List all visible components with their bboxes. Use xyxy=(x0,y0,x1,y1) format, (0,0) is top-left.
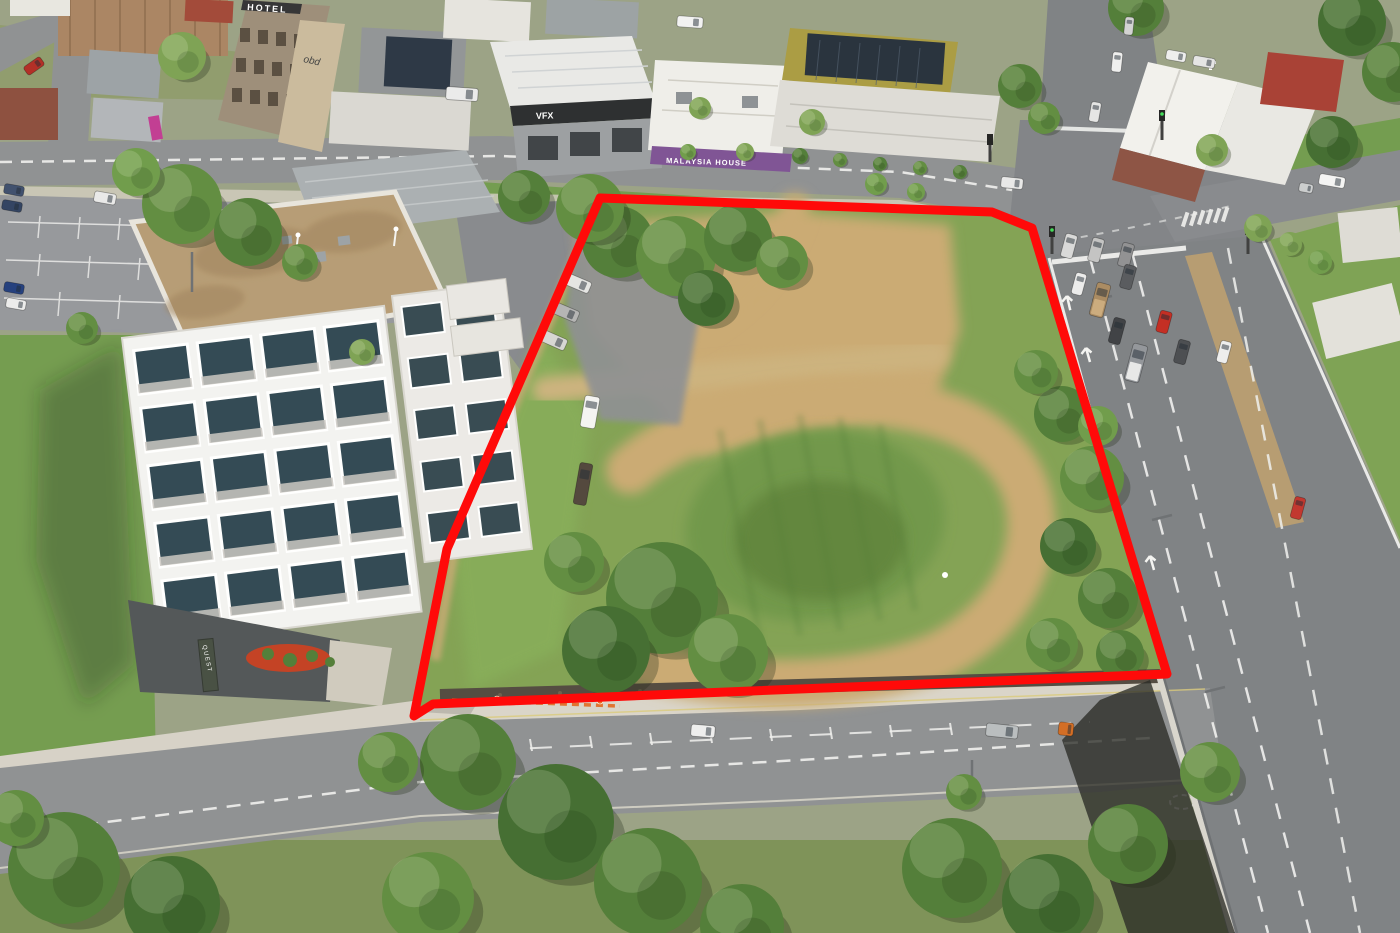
haze-overlay xyxy=(0,0,1400,933)
aerial-photo-stage: HOTEL obd VFX xyxy=(0,0,1400,933)
aerial-photo: HOTEL obd VFX xyxy=(0,0,1400,933)
